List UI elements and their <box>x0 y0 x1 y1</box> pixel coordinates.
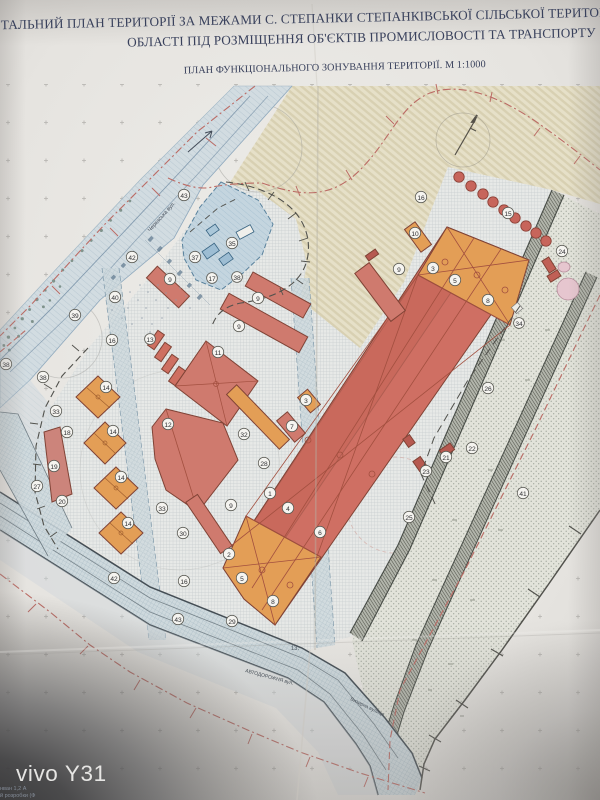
svg-text:vivo Y31: vivo Y31 <box>16 761 107 786</box>
svg-text:нван 1,2 А: нван 1,2 А <box>0 786 27 792</box>
svg-text:й розробки (Ф: й розробки (Ф <box>0 792 35 799</box>
